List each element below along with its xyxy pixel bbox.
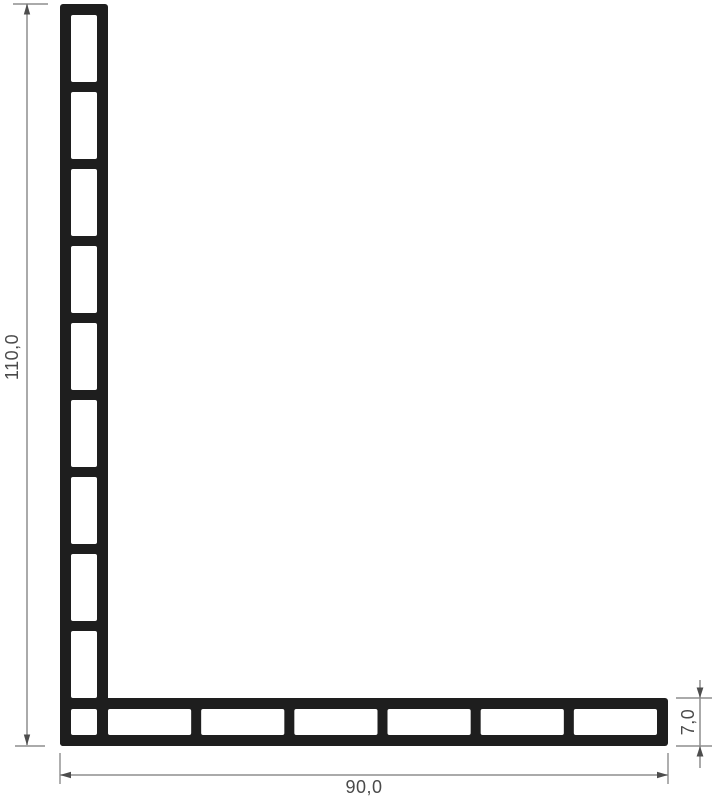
thickness-arrow-up-icon xyxy=(697,746,704,757)
profile-chamber xyxy=(71,92,97,159)
height-arrow-down-icon xyxy=(24,735,30,746)
profile-chamber xyxy=(71,15,97,82)
profile-chamber xyxy=(388,709,471,735)
width-dimension-label: 90,0 xyxy=(345,777,382,797)
height-dimension-label: 110,0 xyxy=(2,334,22,380)
profile-chamber xyxy=(71,169,97,236)
profile-chamber xyxy=(108,709,191,735)
profile-chamber xyxy=(201,709,284,735)
dimension-height: 110,0 xyxy=(2,4,48,747)
profile-chamber xyxy=(71,554,97,621)
profile-chamber xyxy=(71,400,97,467)
width-arrow-right-icon xyxy=(657,772,668,778)
profile-chamber xyxy=(481,709,564,735)
profile-chamber xyxy=(574,709,657,735)
profile-outline xyxy=(60,4,668,746)
profile-chamber xyxy=(71,323,97,390)
technical-drawing-canvas: 110,0 90,0 7,0 xyxy=(0,0,724,800)
profile-chamber xyxy=(71,246,97,313)
profile-chamber xyxy=(294,709,377,735)
dimension-thickness: 7,0 xyxy=(676,680,712,768)
profile-chamber xyxy=(71,477,97,544)
thickness-arrow-down-icon xyxy=(697,688,704,699)
profile-chamber xyxy=(71,709,97,735)
height-arrow-up-icon xyxy=(24,4,30,15)
width-arrow-left-icon xyxy=(60,772,71,778)
thickness-dimension-label: 7,0 xyxy=(678,709,698,736)
dimension-width: 90,0 xyxy=(60,753,668,797)
profile-drawing: 110,0 90,0 7,0 xyxy=(0,0,724,800)
profile-chamber xyxy=(71,631,97,698)
profile-chambers xyxy=(71,15,657,735)
